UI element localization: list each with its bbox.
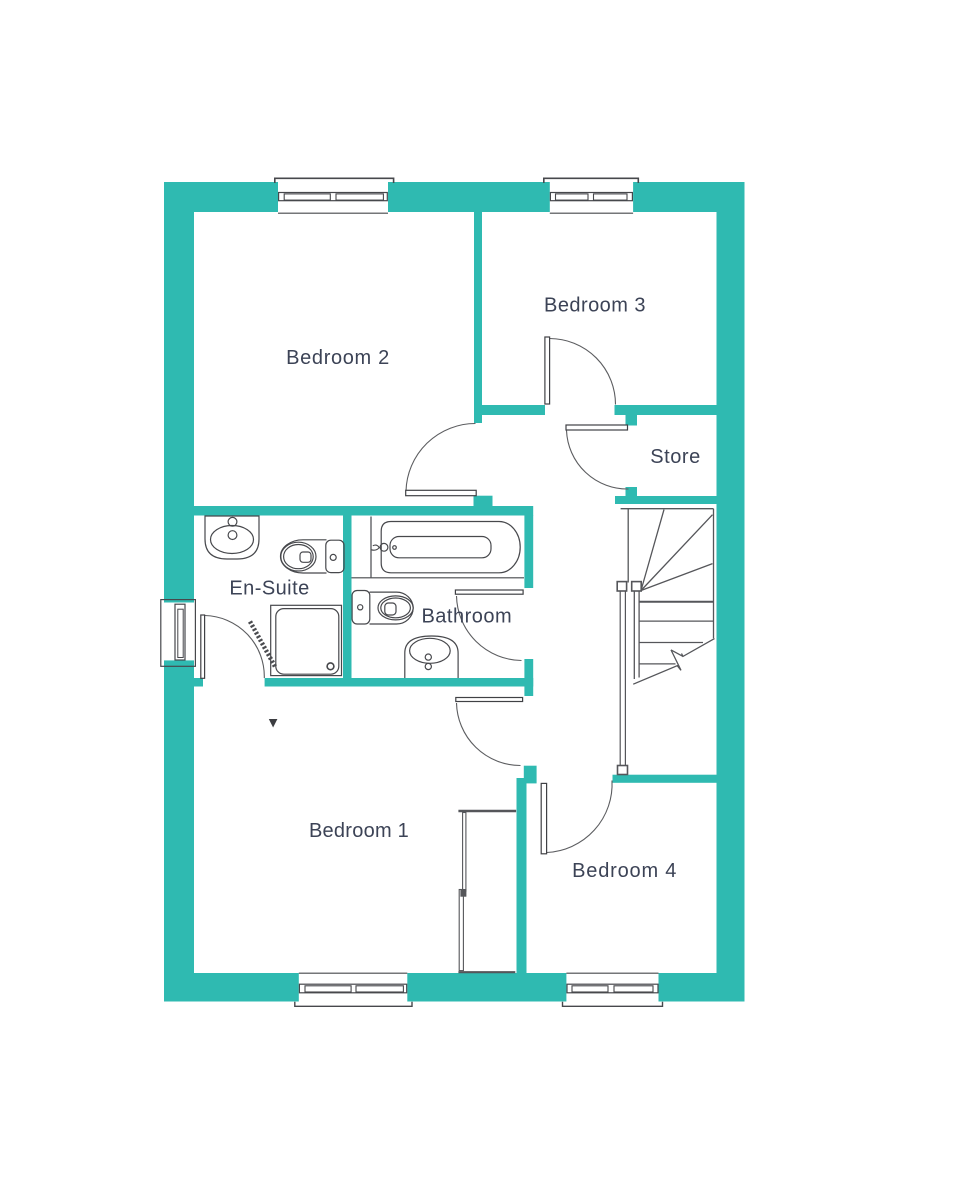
svg-text:Bedroom 3: Bedroom 3 bbox=[544, 295, 646, 317]
svg-text:Store: Store bbox=[650, 446, 701, 468]
svg-text:Bathroom: Bathroom bbox=[421, 606, 512, 628]
svg-text:Bedroom 4: Bedroom 4 bbox=[572, 860, 677, 882]
svg-text:En-Suite: En-Suite bbox=[229, 578, 309, 600]
svg-text:Bedroom 1: Bedroom 1 bbox=[309, 820, 409, 842]
svg-text:Bedroom 2: Bedroom 2 bbox=[286, 347, 390, 369]
